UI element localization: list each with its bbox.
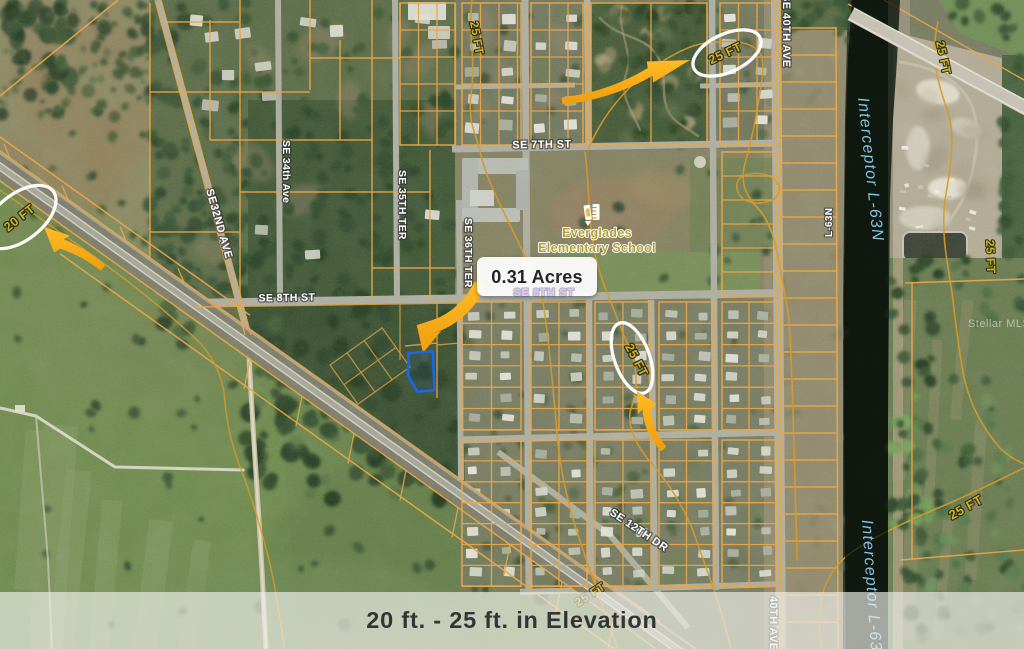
- svg-text:SE 36TH TER: SE 36TH TER: [462, 218, 474, 288]
- svg-text:Everglades: Everglades: [562, 226, 632, 240]
- svg-text:SE 8TH ST: SE 8TH ST: [258, 292, 315, 305]
- svg-text:20 ft. - 25 ft. in Elevation: 20 ft. - 25 ft. in Elevation: [366, 607, 657, 633]
- svg-text:25 FT: 25 FT: [983, 240, 998, 274]
- svg-text:Stellar MLS: Stellar MLS: [968, 318, 1024, 330]
- svg-text:SE 35TH TER: SE 35TH TER: [396, 170, 408, 240]
- svg-text:L-63N: L-63N: [824, 208, 835, 237]
- svg-text:SE 34th Ave: SE 34th Ave: [280, 140, 292, 203]
- svg-text:SE 7TH ST: SE 7TH ST: [512, 138, 571, 151]
- svg-text:SE 8TH ST: SE 8TH ST: [513, 287, 574, 299]
- svg-text:Elementary School: Elementary School: [538, 241, 656, 255]
- svg-text:SE 40TH AVE: SE 40TH AVE: [780, 0, 792, 67]
- svg-text:0.31 Acres: 0.31 Acres: [491, 267, 582, 287]
